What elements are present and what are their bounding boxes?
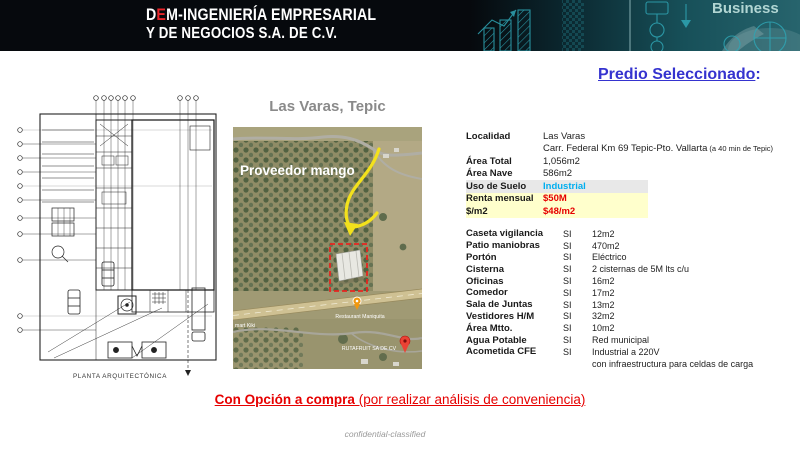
- table-row-land-use: Uso de SueloIndustrial: [466, 180, 648, 193]
- table-row-price-m2: $/m2$48/m2: [466, 205, 648, 218]
- company-logo-line2: Y DE NEGOCIOS S.A. DE C.V.: [146, 25, 376, 43]
- table-row: ComedorSI17m2: [466, 287, 800, 299]
- business-sketch-icon: Business: [470, 0, 800, 51]
- floor-plan: PLANTA ARQUITECTÓNICA: [12, 90, 228, 391]
- purchase-option-bold: Con Opción a compra: [215, 392, 355, 407]
- company-pin-label: RUTAFRUIT SA DE CV: [342, 346, 397, 352]
- land-use-value: Industrial: [543, 181, 586, 192]
- table-row: con infraestructura para celdas de carga: [466, 358, 800, 370]
- satellite-map: Proveedor mango Restaurant Maniquita RUT…: [233, 127, 422, 369]
- table-row: Área Mtto.SI10m2: [466, 322, 800, 334]
- rent-value: $50M: [543, 193, 567, 204]
- table-row-rent: Renta mensual$50M: [466, 193, 648, 206]
- purchase-option-note: Con Opción a compra (por realizar anális…: [0, 392, 800, 407]
- table-row: Carr. Federal Km 69 Tepic-Pto. Vallarta(…: [466, 143, 800, 156]
- table-row: Área Total1,056m2: [466, 155, 800, 168]
- confidential-watermark: confidential-classified: [0, 429, 770, 439]
- table-row: Área Nave586m2: [466, 168, 800, 181]
- company-logo: DEM-INGENIERÍA EMPRESARIAL Y DE NEGOCIOS…: [146, 6, 376, 43]
- satellite-map-image: Proveedor mango Restaurant Maniquita RUT…: [233, 127, 422, 369]
- property-features-table: Caseta vigilanciaSI12m2 Patio maniobrasS…: [466, 228, 800, 370]
- price-m2-value: $48/m2: [543, 206, 575, 217]
- travel-time-note: (a 40 min de Tepic): [709, 144, 773, 153]
- table-row: Agua PotableSIRed municipal: [466, 334, 800, 346]
- map-overlay-label: Proveedor mango: [240, 163, 355, 178]
- table-row: CisternaSI2 cisternas de 5M lts c/u: [466, 263, 800, 275]
- map-title: Las Varas, Tepic: [233, 98, 422, 115]
- table-row: LocalidadLas Varas: [466, 130, 800, 143]
- table-row: Vestidores H/MSI32m2: [466, 311, 800, 323]
- purchase-option-detail: (por realizar análisis de conveniencia): [355, 392, 585, 407]
- floor-plan-caption: PLANTA ARQUITECTÓNICA: [73, 371, 167, 380]
- property-summary-table: LocalidadLas Varas Carr. Federal Km 69 T…: [466, 130, 800, 218]
- company-logo-line1: DEM-INGENIERÍA EMPRESARIAL: [146, 6, 376, 25]
- table-row: PortónSIEléctrico: [466, 252, 800, 264]
- table-row: Patio maniobrasSI470m2: [466, 240, 800, 252]
- floor-plan-drawing: PLANTA ARQUITECTÓNICA: [12, 90, 228, 386]
- restaurant-pin-label: Restaurant Maniquita: [335, 314, 384, 320]
- page-title: Predio Seleccionado:: [598, 66, 761, 84]
- table-row: Caseta vigilanciaSI12m2: [466, 228, 800, 240]
- business-watermark-text: Business: [712, 0, 779, 17]
- header-business-artwork: Business: [470, 0, 800, 51]
- table-row: OficinasSI16m2: [466, 275, 800, 287]
- table-row: Acometida CFESIIndustrial a 220V: [466, 346, 800, 358]
- slide: Business DEM-INGENIERÍA EMPRESARIAL Y DE…: [0, 0, 800, 450]
- store-label: mart Kiki: [235, 323, 255, 329]
- header-bar: Business DEM-INGENIERÍA EMPRESARIAL Y DE…: [0, 0, 800, 51]
- table-row: Sala de JuntasSI13m2: [466, 299, 800, 311]
- logo-red-e: E: [156, 6, 166, 24]
